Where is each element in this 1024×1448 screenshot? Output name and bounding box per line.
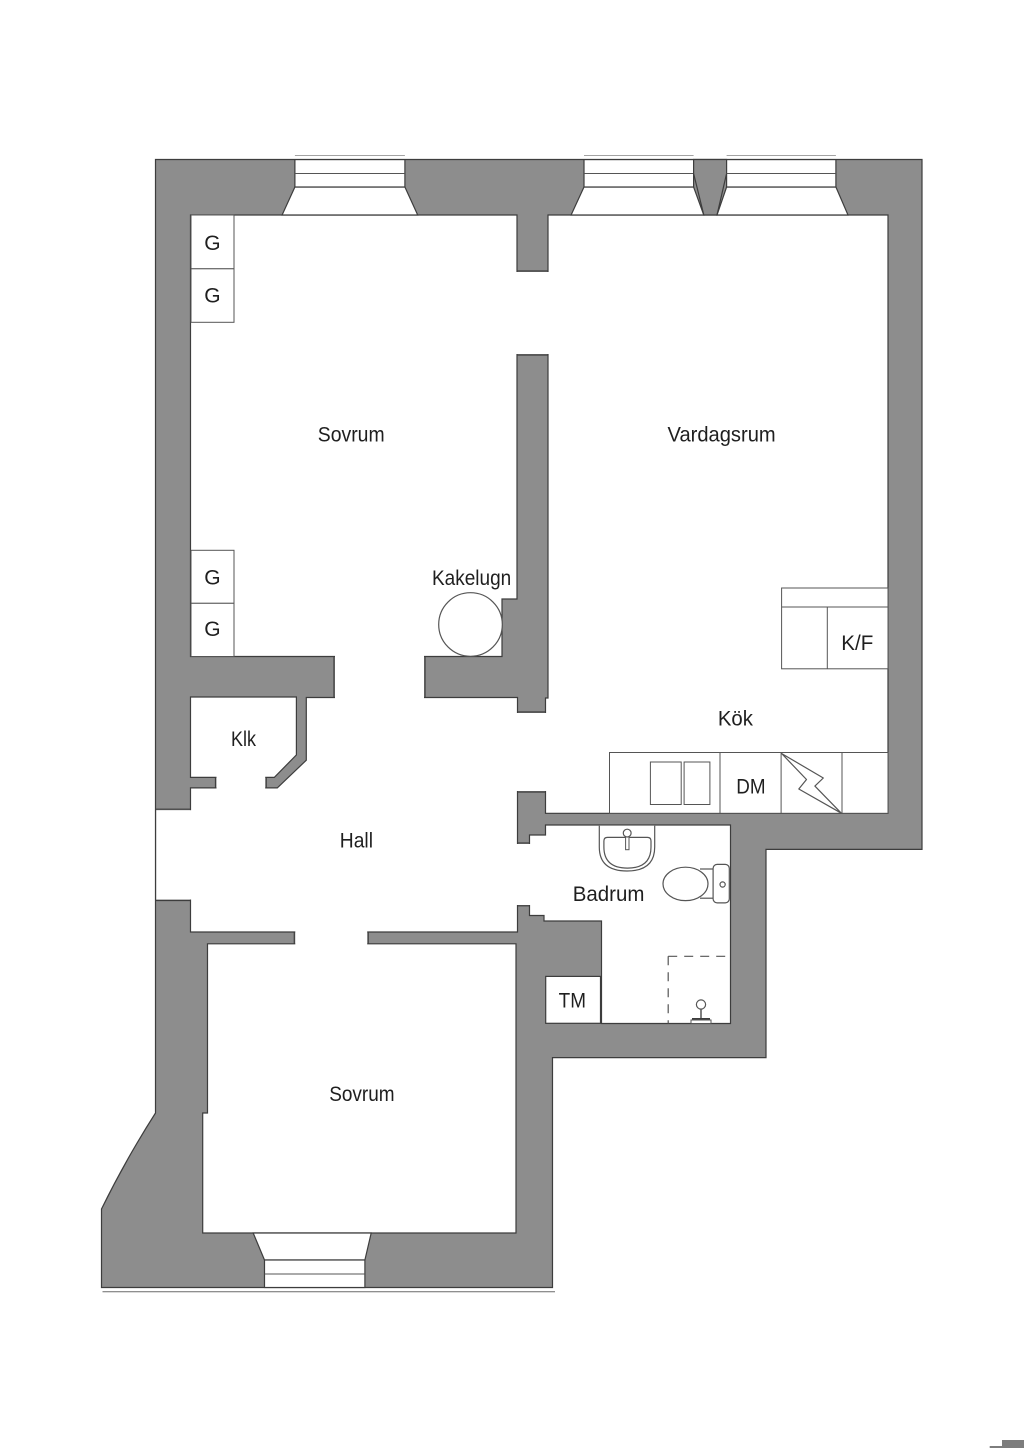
svg-text:G: G [204,232,220,255]
svg-text:DM: DM [736,776,765,799]
svg-text:Sovrum: Sovrum [329,1083,394,1106]
svg-text:Sovrum: Sovrum [318,424,385,447]
svg-text:G: G [204,285,220,308]
svg-text:Kakelugn: Kakelugn [432,567,511,590]
svg-text:TM: TM [559,990,586,1013]
svg-text:Hall: Hall [340,830,373,853]
svg-text:G: G [204,567,220,590]
svg-text:Badrum: Badrum [573,883,645,906]
svg-text:G: G [204,618,220,641]
svg-text:K/F: K/F [841,632,873,655]
svg-text:Kök: Kök [718,708,754,731]
svg-text:Vardagsrum: Vardagsrum [668,424,776,447]
svg-text:Klk: Klk [231,728,256,751]
